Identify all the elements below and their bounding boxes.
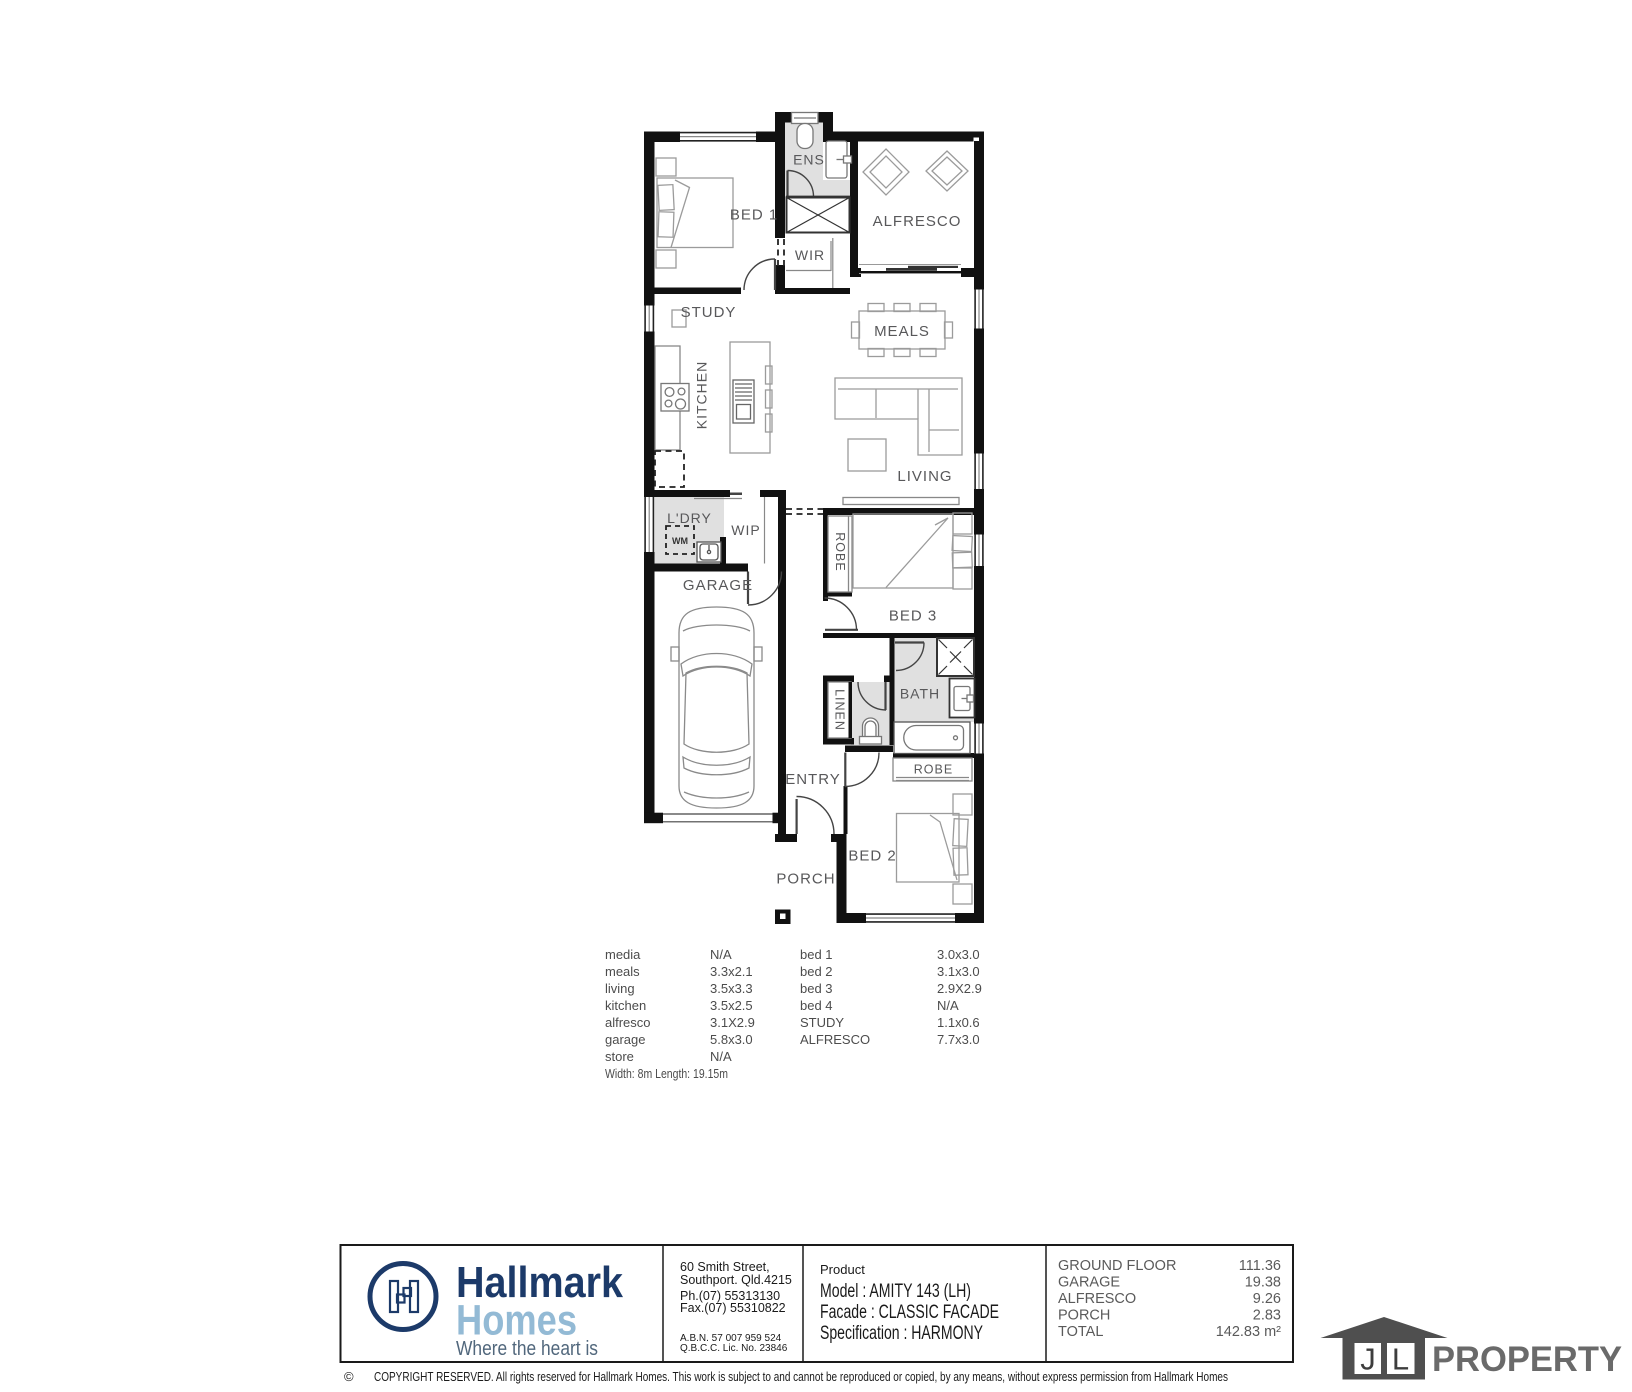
svg-text:PORCH: PORCH [776,871,835,888]
svg-text:GARAGE: GARAGE [683,577,753,594]
svg-text:LIVING: LIVING [897,468,952,485]
svg-text:ENS: ENS [793,152,825,168]
svg-text:GARAGE: GARAGE [1058,1275,1120,1291]
svg-text:Southport. Qld.4215: Southport. Qld.4215 [680,1273,792,1287]
svg-text:Facade : CLASSIC FACADE: Facade : CLASSIC FACADE [820,1302,999,1323]
svg-text:WIR: WIR [795,247,825,263]
svg-text:WIP: WIP [731,522,760,538]
svg-text:ALFRESCO: ALFRESCO [873,213,962,230]
svg-text:5.8x3.0: 5.8x3.0 [710,1032,753,1047]
svg-text:meals: meals [605,964,640,979]
svg-text:Product: Product [820,1262,865,1277]
svg-text:L: L [1392,1342,1409,1377]
svg-text:ROBE: ROBE [914,763,953,777]
svg-text:3.1X2.9: 3.1X2.9 [710,1015,755,1030]
svg-text:Width: 8m Length: 19.15m: Width: 8m Length: 19.15m [605,1066,728,1081]
svg-text:BED 2: BED 2 [848,848,896,865]
svg-text:3.5x3.3: 3.5x3.3 [710,981,753,996]
svg-text:bed 3: bed 3 [800,981,833,996]
svg-text:Specification : HARMONY: Specification : HARMONY [820,1323,983,1344]
svg-text:N/A: N/A [937,998,959,1013]
svg-text:3.3x2.1: 3.3x2.1 [710,964,753,979]
svg-text:alfresco: alfresco [605,1015,651,1030]
svg-text:STUDY: STUDY [681,304,737,321]
svg-text:1.1x0.6: 1.1x0.6 [937,1015,980,1030]
svg-text:COPYRIGHT RESERVED. All rights: COPYRIGHT RESERVED. All rights reserved … [374,1370,1228,1384]
svg-text:store: store [605,1049,634,1064]
svg-text:TOTAL: TOTAL [1058,1324,1103,1340]
svg-text:ALFRESCO: ALFRESCO [1058,1291,1136,1307]
svg-text:BED 3: BED 3 [889,608,937,625]
svg-text:N/A: N/A [710,1049,732,1064]
svg-text:111.36: 111.36 [1239,1258,1281,1274]
svg-text:3.1x3.0: 3.1x3.0 [937,964,980,979]
svg-text:ALFRESCO: ALFRESCO [800,1032,870,1047]
svg-text:garage: garage [605,1032,645,1047]
svg-text:PORCH: PORCH [1058,1308,1110,1324]
svg-text:BED 1: BED 1 [730,207,778,224]
svg-text:media: media [605,947,641,962]
svg-text:bed 2: bed 2 [800,964,833,979]
svg-text:2.9X2.9: 2.9X2.9 [937,981,982,996]
svg-text:KITCHEN: KITCHEN [694,361,710,429]
svg-text:Fax.(07) 55310822: Fax.(07) 55310822 [680,1301,786,1315]
svg-text:2.83: 2.83 [1253,1308,1281,1324]
svg-text:L'DRY: L'DRY [667,510,712,526]
svg-text:60 Smith Street,: 60 Smith Street, [680,1260,770,1274]
svg-text:living: living [605,981,635,996]
svg-text:N/A: N/A [710,947,732,962]
svg-text:Model : AMITY 143 (LH): Model : AMITY 143 (LH) [820,1281,971,1302]
svg-text:ENTRY: ENTRY [785,771,841,788]
svg-text:3.5x2.5: 3.5x2.5 [710,998,753,1013]
svg-text:Where the heart is: Where the heart is [456,1338,598,1360]
svg-text:GROUND FLOOR: GROUND FLOOR [1058,1258,1176,1274]
svg-text:WM: WM [672,536,688,546]
svg-text:bed 1: bed 1 [800,947,833,962]
svg-text:142.83 m²: 142.83 m² [1216,1324,1281,1340]
svg-text:kitchen: kitchen [605,998,646,1013]
svg-text:9.26: 9.26 [1253,1291,1281,1307]
svg-text:BATH: BATH [900,686,940,702]
svg-text:PROPERTY: PROPERTY [1432,1340,1622,1379]
svg-text:19.38: 19.38 [1245,1275,1281,1291]
svg-text:3.0x3.0: 3.0x3.0 [937,947,980,962]
svg-text:MEALS: MEALS [874,323,930,340]
svg-text:7.7x3.0: 7.7x3.0 [937,1032,980,1047]
svg-text:ROBE: ROBE [833,532,847,571]
svg-text:bed 4: bed 4 [800,998,833,1013]
svg-text:STUDY: STUDY [800,1015,844,1030]
svg-text:LINEN: LINEN [833,689,847,731]
svg-text:©: © [344,1369,354,1384]
svg-text:J: J [1360,1342,1376,1377]
svg-text:Q.B.C.C. Lic. No. 23846: Q.B.C.C. Lic. No. 23846 [680,1343,788,1354]
